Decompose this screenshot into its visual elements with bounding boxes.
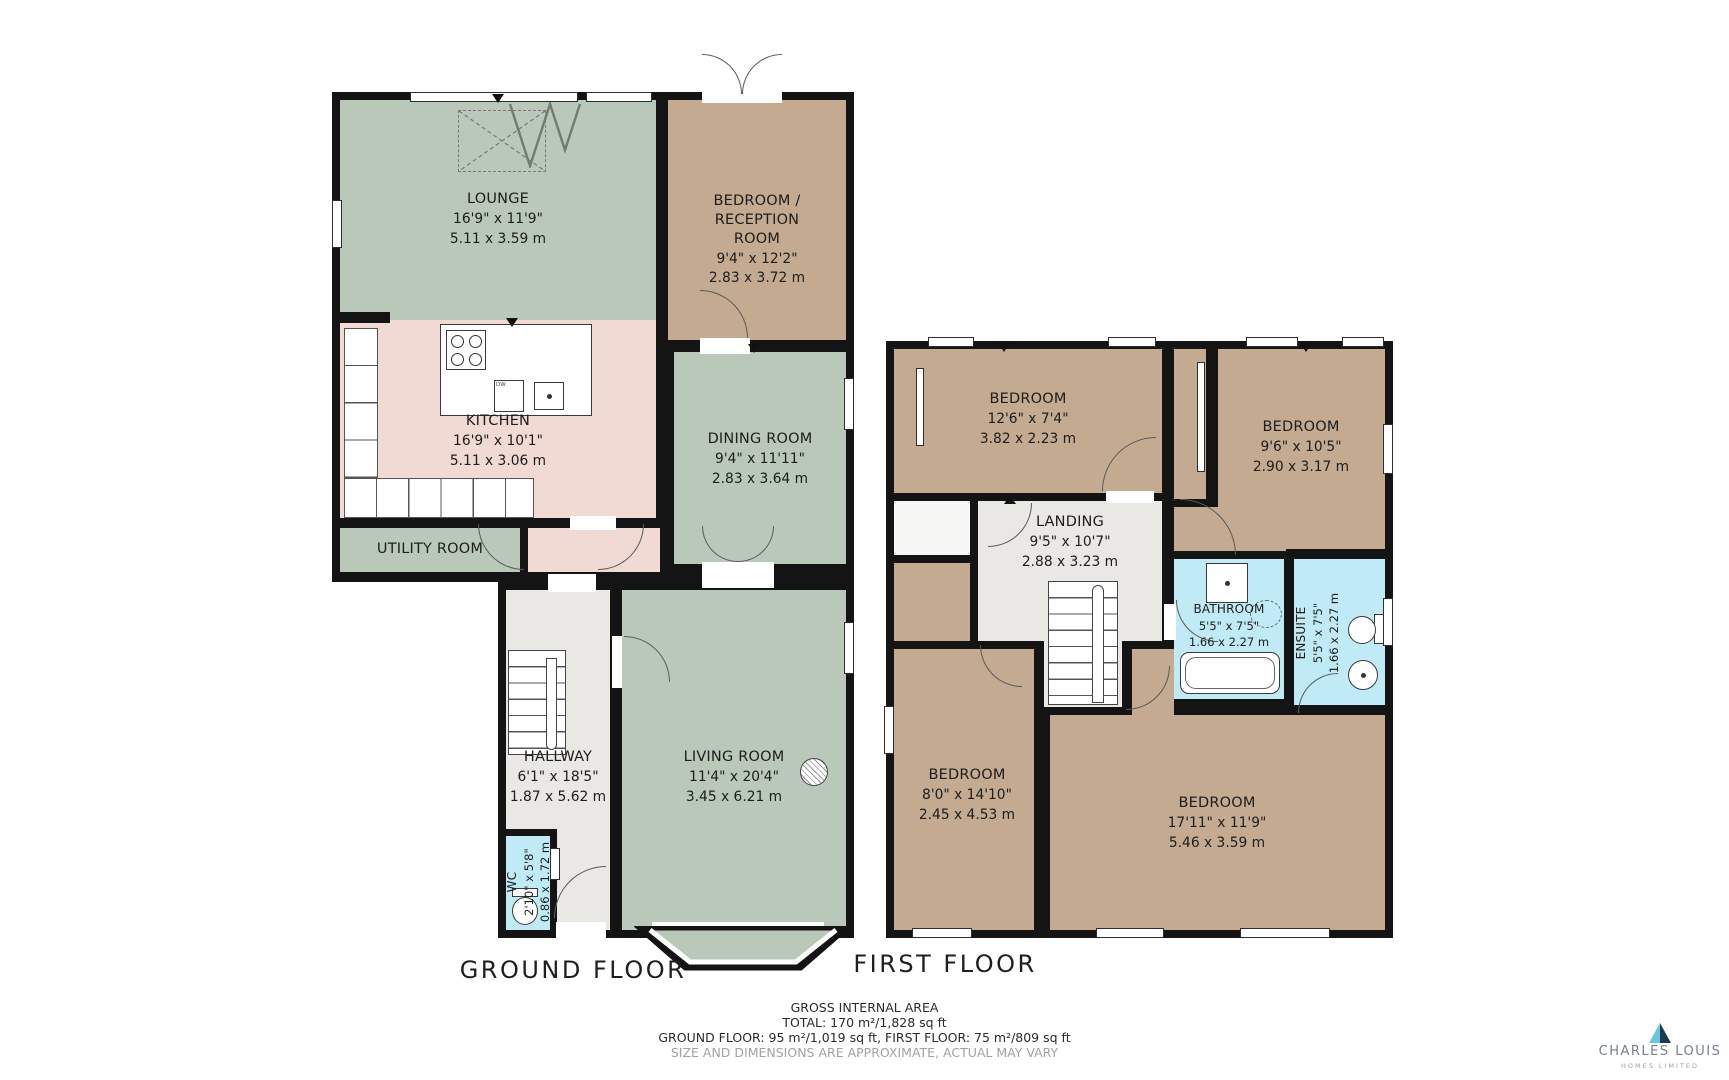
lounge-left-window [332, 200, 342, 248]
double-door-left-icon [702, 54, 742, 94]
cupboard [894, 563, 970, 641]
bedroom-bl-left-window [884, 706, 894, 754]
room-dim-m: 2.90 x 3.17 m [1231, 459, 1371, 477]
room-dim-m: 2.83 x 3.64 m [690, 471, 830, 489]
first-stairs-rail-icon [1092, 585, 1104, 703]
bedroom-tl-top-window [928, 337, 974, 347]
bottom-window-2 [1096, 928, 1164, 938]
lounge-label: LOUNGE 16'9" x 11'9" 5.11 x 3.59 m [428, 190, 568, 249]
lounge-kitchen-wall-stub [332, 312, 390, 323]
footer-total: TOTAL: 170 m²/1,828 sq ft [0, 1015, 1729, 1030]
front-door-gap [556, 922, 606, 938]
room-dim-m: 1.87 x 5.62 m [488, 789, 628, 807]
bedroom-tl-top-window-2 [1108, 337, 1156, 347]
dining-label: DINING ROOM 9'4" x 11'11" 2.83 x 3.64 m [690, 430, 830, 489]
bedroom-tl-door-gap [1106, 491, 1154, 503]
landing-closet [894, 501, 970, 555]
bedroom-bl-label: BEDROOM 8'0" x 14'10" 2.45 x 4.53 m [897, 766, 1037, 825]
bottom-window-3 [1240, 928, 1330, 938]
bedroom-br-label: BEDROOM 17'11" x 11'9" 5.46 x 3.59 m [1147, 794, 1287, 853]
hob-burner-icon [451, 335, 464, 348]
bedroom-tr-label: BEDROOM 9'6" x 10'5" 2.90 x 3.17 m [1231, 418, 1371, 477]
bedroom-reception-label: BEDROOM / RECEPTION ROOM 9'4" x 12'2" 2.… [699, 192, 815, 288]
room-dim-m: 5.11 x 3.59 m [428, 231, 568, 249]
brand-name: CHARLES LOUIS [1595, 1044, 1725, 1059]
room-name: ENSUITE [1294, 570, 1310, 696]
bathroom-sink-icon [1206, 563, 1248, 603]
bathtub-inner-icon [1185, 657, 1275, 689]
room-dim-m: 2.45 x 4.53 m [897, 807, 1037, 825]
wall-tick-icon [998, 343, 1010, 352]
recess-window [1197, 362, 1205, 472]
bedroom-tl-label: BEDROOM 12'6" x 7'4" 3.82 x 2.23 m [958, 390, 1098, 449]
room-dim-ft: 2'10" x 5'8" [522, 832, 537, 932]
landing-label: LANDING 9'5" x 10'7" 2.88 x 3.23 m [1000, 513, 1140, 572]
room-name: HALLWAY [488, 748, 628, 767]
zigzag-icon [508, 102, 590, 168]
ground-stairs-icon [508, 650, 566, 755]
hob-icon [446, 330, 486, 370]
room-name: DINING ROOM [690, 430, 830, 449]
bedroom-tl-side-window [916, 368, 924, 446]
brand-block: CHARLES LOUIS HOMES LIMITED [1595, 1022, 1725, 1070]
bedrec-door-gap [700, 338, 750, 354]
kitchen-cabinets-left [344, 328, 378, 478]
room-dim-m: 3.45 x 6.21 m [664, 789, 804, 807]
room-name: BEDROOM [897, 766, 1037, 785]
bedroom-tr-top-window-2 [1342, 337, 1384, 347]
hall-living-gap [612, 636, 622, 688]
room-name: BEDROOM / RECEPTION ROOM [699, 192, 815, 249]
room-dim-ft: 6'1" x 18'5" [488, 769, 628, 787]
room-dim-m: 0.86 x 1.72 m [538, 832, 553, 932]
kitchen-label: KITCHEN 16'9" x 10'1" 5.11 x 3.06 m [428, 412, 568, 471]
dishwasher-icon: DW [494, 380, 524, 412]
floorplan-page: DW LOUNGE 16'9" x 11'9" 5.11 x 3.59 [0, 0, 1729, 1080]
wc-label: WC 2'10" x 5'8" 0.86 x 1.72 m [505, 832, 551, 932]
brand-logo-icon [1647, 1022, 1673, 1044]
wall-tick-icon [506, 318, 518, 327]
room-name: KITCHEN [428, 412, 568, 431]
hob-burner-icon [469, 335, 482, 348]
ensuite-right-window [1383, 598, 1393, 646]
ensuite-label: ENSUITE 5'5" x 7'5" 1.66 x 2.27 m [1294, 570, 1340, 696]
room-dim-ft: 9'4" x 12'2" [699, 251, 815, 269]
ground-floor-title: GROUND FLOOR [423, 956, 723, 984]
double-door-right-icon [742, 54, 782, 94]
wall-tick-icon [492, 94, 504, 103]
bathtub-icon [1180, 652, 1280, 694]
sink-drain-icon [1225, 581, 1230, 586]
footer-floors: GROUND FLOOR: 95 m²/1,019 sq ft, FIRST F… [0, 1030, 1729, 1045]
ensuite-toilet-icon [1348, 616, 1376, 644]
brand-subtitle: HOMES LIMITED [1595, 1062, 1725, 1070]
utility-label: UTILITY ROOM [360, 540, 500, 559]
sink-drain-icon [1361, 673, 1366, 678]
living-circle-icon [800, 758, 828, 786]
room-dim-ft: 11'4" x 20'4" [664, 769, 804, 787]
room-dim-ft: 9'5" x 10'7" [1000, 534, 1140, 552]
room-dim-ft: 5'5" x 7'5" [1161, 619, 1297, 634]
lounge-top-window-2 [586, 92, 652, 102]
living-label: LIVING ROOM 11'4" x 20'4" 3.45 x 6.21 m [664, 748, 804, 807]
room-name: LIVING ROOM [664, 748, 804, 767]
room-dim-ft: 16'9" x 11'9" [428, 211, 568, 229]
dining-right-window [844, 378, 854, 430]
bedroom-tr-top-window [1246, 337, 1298, 347]
room-dim-m: 3.82 x 2.23 m [958, 431, 1098, 449]
bottom-window-1 [912, 928, 972, 938]
living-right-window [844, 622, 854, 674]
hallway-label: HALLWAY 6'1" x 18'5" 1.87 x 5.62 m [488, 748, 628, 807]
room-name: LOUNGE [428, 190, 568, 209]
footer-disclaimer: SIZE AND DIMENSIONS ARE APPROXIMATE, ACT… [0, 1045, 1729, 1060]
room-dim-m: 2.88 x 3.23 m [1000, 554, 1140, 572]
hob-burner-icon [469, 353, 482, 366]
room-dim-m: 1.66 x 2.27 m [1161, 635, 1297, 650]
kitchen-sink-icon [534, 382, 564, 410]
room-dim-ft: 12'6" x 7'4" [958, 411, 1098, 429]
room-name: LANDING [1000, 513, 1140, 532]
ensuite-sink-icon [1348, 660, 1378, 690]
wall-tick-icon [1300, 343, 1312, 352]
hob-burner-icon [451, 353, 464, 366]
room-name: BEDROOM [958, 390, 1098, 409]
room-dim-m: 5.46 x 3.59 m [1147, 835, 1287, 853]
room-dim-ft: 8'0" x 14'10" [897, 787, 1037, 805]
room-dim-ft: 5'5" x 7'5" [1311, 570, 1326, 696]
room-dim-ft: 9'6" x 10'5" [1231, 439, 1371, 457]
sink-drain-icon [547, 394, 552, 399]
bathroom-label: BATHROOM 5'5" x 7'5" 1.66 x 2.27 m [1161, 602, 1297, 649]
room-name: WC [505, 832, 521, 932]
room-name: UTILITY ROOM [360, 540, 500, 559]
first-stairs-icon [1048, 581, 1118, 705]
room-dim-ft: 9'4" x 11'11" [690, 451, 830, 469]
room-name: BATHROOM [1161, 602, 1297, 618]
first-floor-title: FIRST FLOOR [820, 950, 1070, 978]
kitchen-cabinets-bottom [344, 478, 534, 518]
room-dim-ft: 17'11" x 11'9" [1147, 815, 1287, 833]
room-dim-m: 1.66 x 2.27 m [1327, 570, 1342, 696]
wall-tick-icon [748, 344, 760, 353]
room-dim-m: 5.11 x 3.06 m [428, 453, 568, 471]
bedroom-tr-right-window [1383, 424, 1393, 474]
ground-stairs-rail-icon [546, 658, 557, 750]
room-name: BEDROOM [1231, 418, 1371, 437]
wall-tick-icon [1004, 495, 1016, 504]
hallway-top-gap [548, 574, 596, 592]
footer-gross-area: GROSS INTERNAL AREA [0, 1000, 1729, 1015]
room-dim-ft: 16'9" x 10'1" [428, 433, 568, 451]
dining-living-door-gap [702, 562, 774, 588]
room-name: BEDROOM [1147, 794, 1287, 813]
dishwasher-label: DW [496, 382, 506, 388]
room-dim-m: 2.83 x 3.72 m [699, 270, 815, 288]
